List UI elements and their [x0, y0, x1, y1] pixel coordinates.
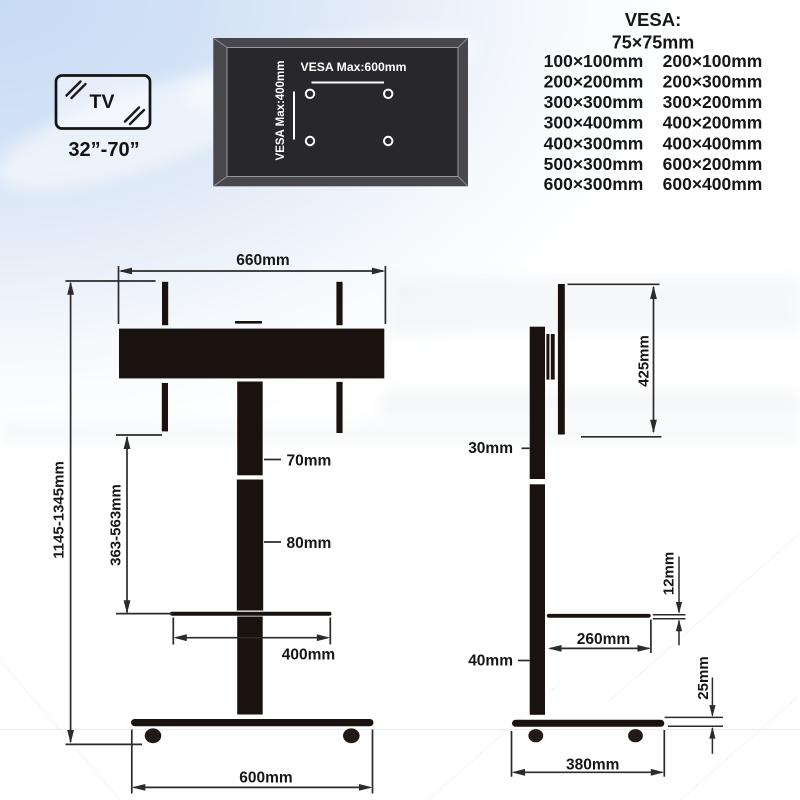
- svg-text:260mm: 260mm: [577, 631, 630, 648]
- svg-text:300×300mm: 300×300mm: [544, 92, 644, 112]
- svg-text:200×300mm: 200×300mm: [663, 72, 763, 92]
- svg-text:600×400mm: 600×400mm: [663, 174, 763, 194]
- svg-text:100×100mm: 100×100mm: [544, 51, 644, 71]
- svg-text:12mm: 12mm: [661, 552, 678, 595]
- svg-text:300×200mm: 300×200mm: [663, 92, 763, 112]
- svg-text:600mm: 600mm: [239, 770, 292, 787]
- svg-text:30mm: 30mm: [468, 440, 513, 457]
- svg-text:300×400mm: 300×400mm: [544, 113, 644, 133]
- svg-text:200×200mm: 200×200mm: [544, 72, 644, 92]
- svg-text:380mm: 380mm: [566, 757, 619, 774]
- svg-text:363-563mm: 363-563mm: [108, 484, 125, 566]
- svg-text:TV: TV: [90, 91, 115, 113]
- svg-text:500×300mm: 500×300mm: [544, 154, 644, 174]
- svg-text:400×300mm: 400×300mm: [544, 133, 644, 153]
- svg-text:400×200mm: 400×200mm: [663, 113, 763, 133]
- svg-text:200×100mm: 200×100mm: [663, 51, 763, 71]
- svg-text:70mm: 70mm: [287, 453, 332, 470]
- svg-text:32”-70”: 32”-70”: [68, 139, 139, 161]
- svg-text:400×400mm: 400×400mm: [663, 133, 763, 153]
- svg-text:VESA:: VESA:: [625, 9, 682, 30]
- svg-text:600×200mm: 600×200mm: [663, 154, 763, 174]
- svg-text:VESA Max:400mm: VESA Max:400mm: [275, 61, 287, 161]
- svg-text:1145-1345mm: 1145-1345mm: [51, 461, 68, 559]
- svg-text:75×75mm: 75×75mm: [612, 32, 695, 52]
- svg-text:660mm: 660mm: [236, 252, 289, 269]
- svg-text:VESA Max:600mm: VESA Max:600mm: [301, 60, 407, 74]
- svg-text:80mm: 80mm: [287, 535, 332, 552]
- svg-text:40mm: 40mm: [468, 652, 513, 669]
- svg-text:600×300mm: 600×300mm: [544, 174, 644, 194]
- svg-text:25mm: 25mm: [695, 656, 712, 699]
- svg-text:400mm: 400mm: [282, 647, 335, 664]
- svg-text:425mm: 425mm: [636, 335, 653, 387]
